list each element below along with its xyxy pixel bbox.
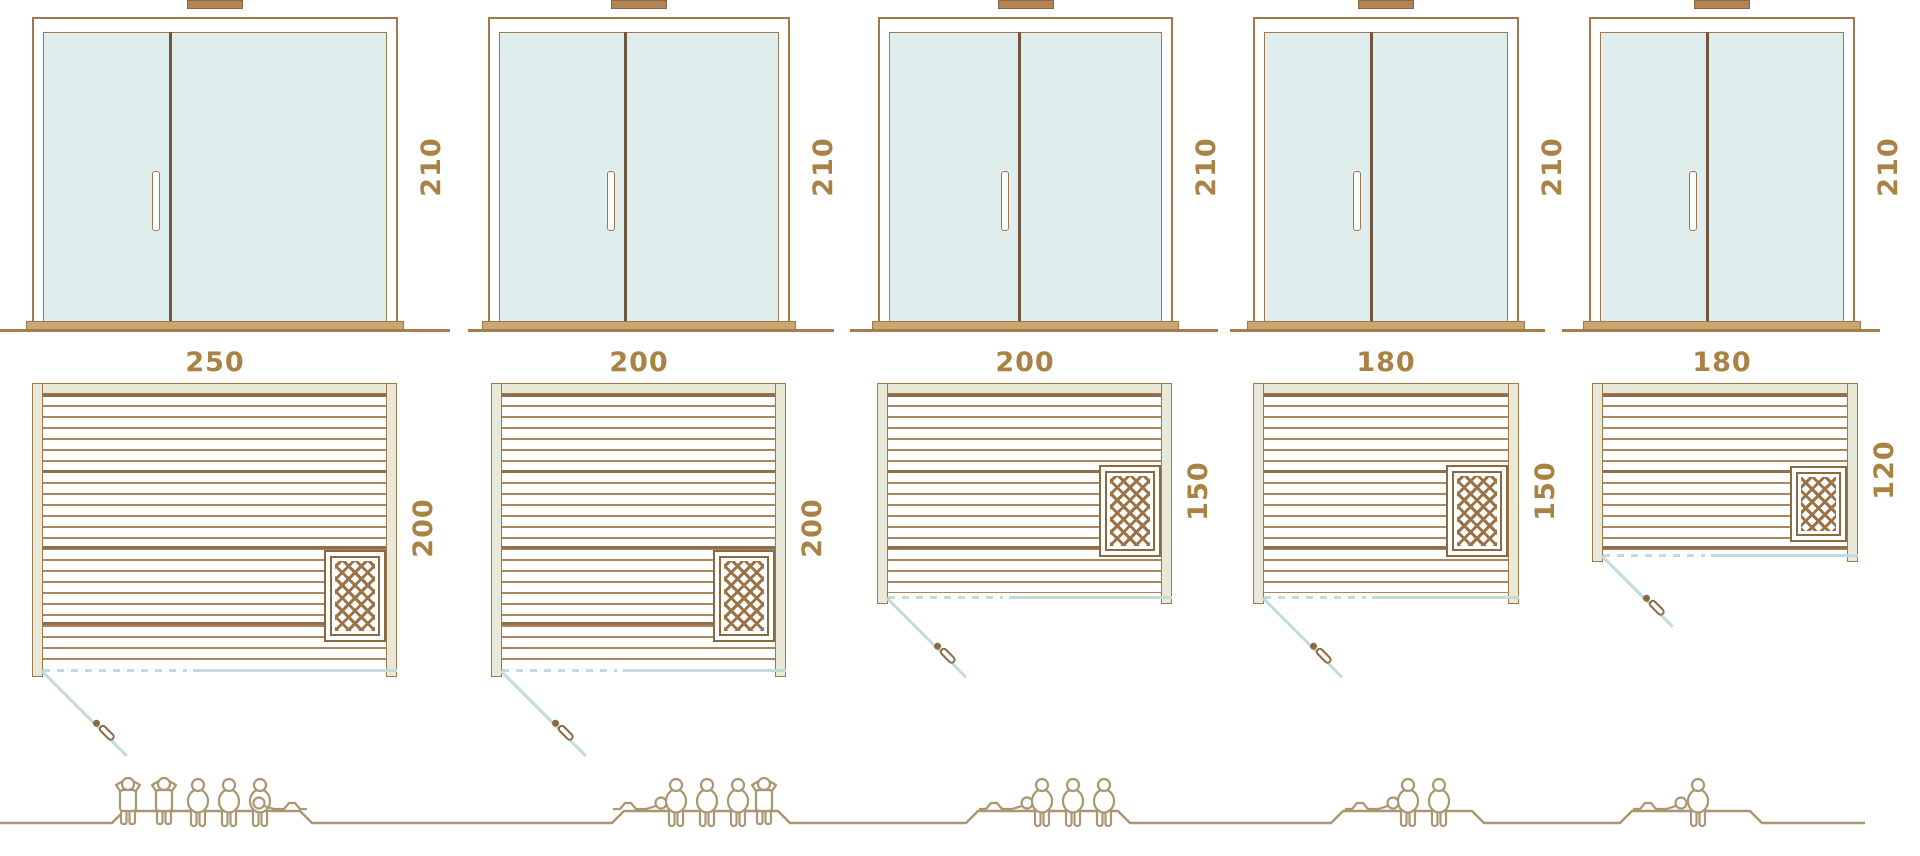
heater-grate-icon — [1801, 477, 1836, 531]
door-sill — [482, 321, 796, 330]
door-opening-dashed-line — [43, 669, 187, 672]
plan-left-wall — [1253, 383, 1264, 604]
person-lying-icon — [1346, 798, 1399, 810]
person-sitting-icon — [219, 779, 239, 826]
person-sitting-icon — [188, 779, 208, 826]
door-opening-dashed-line — [1603, 554, 1705, 557]
roof-vent-cap — [998, 0, 1054, 9]
plan-top-wall — [1253, 383, 1519, 394]
door-handle-icon — [1353, 171, 1361, 231]
plan-top-wall — [32, 383, 397, 394]
plan-depth-label: 120 — [1872, 430, 1898, 510]
plan-door-handle-bar — [1314, 646, 1333, 665]
person-lying-icon — [254, 798, 307, 810]
person-sitting-icon — [728, 779, 748, 826]
plan-left-wall — [491, 383, 502, 677]
person-standing-icon — [152, 778, 176, 824]
glass-front-line — [193, 669, 397, 672]
plan-door-handle-icon — [1308, 640, 1336, 668]
door-sill — [26, 321, 404, 330]
plan-door-handle-icon — [550, 717, 578, 745]
plan-depth-label: 200 — [800, 488, 826, 568]
glass-front-line — [1711, 554, 1858, 557]
door-height-label: 210 — [811, 127, 837, 207]
roof-vent-cap — [187, 0, 243, 9]
door-swing-line — [500, 670, 587, 757]
plan-door-handle-bar — [556, 723, 575, 742]
door-divider — [1706, 32, 1709, 322]
door-opening-dashed-line — [502, 669, 617, 672]
plan-width-label: 250 — [155, 350, 275, 376]
glass-front-line — [1009, 596, 1172, 599]
person-standing-icon — [752, 778, 776, 824]
door-swing-line — [41, 670, 128, 757]
plan-door-handle-icon — [1641, 592, 1669, 620]
door-opening-dashed-line — [1264, 596, 1366, 599]
door-sill — [872, 321, 1179, 330]
plan-top-wall — [1592, 383, 1858, 394]
person-lying-icon — [614, 798, 667, 810]
door-handle-icon — [152, 171, 160, 231]
roof-vent-cap — [1694, 0, 1750, 9]
person-sitting-icon — [1063, 779, 1083, 826]
door-divider — [1370, 32, 1373, 322]
person-sitting-icon — [666, 779, 686, 826]
glass-front-line — [1372, 596, 1519, 599]
plan-door-handle-bar — [938, 646, 957, 665]
plan-left-wall — [1592, 383, 1603, 562]
glass-panel-right — [1019, 32, 1162, 322]
plan-door-handle-bar — [1647, 598, 1666, 617]
glass-panel-right — [1371, 32, 1508, 322]
plan-door-handle-bar — [97, 723, 116, 742]
glass-panel-left — [889, 32, 1019, 322]
glass-panel-right — [1707, 32, 1844, 322]
person-lying-icon — [980, 798, 1033, 810]
plan-right-wall — [1508, 383, 1519, 604]
person-lying-icon — [1634, 798, 1687, 810]
plan-right-wall — [775, 383, 786, 677]
heater-grate-icon — [1110, 476, 1150, 546]
plan-depth-label: 200 — [411, 488, 437, 568]
door-height-label: 210 — [1540, 127, 1566, 207]
door-opening-dashed-line — [888, 596, 1003, 599]
person-sitting-icon — [1032, 779, 1052, 826]
plan-right-wall — [386, 383, 397, 677]
plan-door-handle-icon — [91, 717, 119, 745]
glass-panel-right — [170, 32, 387, 322]
door-divider — [169, 32, 172, 322]
plan-depth-label: 150 — [1533, 451, 1559, 531]
person-sitting-icon — [1429, 779, 1449, 826]
plan-door-handle-icon — [932, 640, 960, 668]
plan-depth-label: 150 — [1186, 451, 1212, 531]
door-handle-icon — [607, 171, 615, 231]
glass-front-line — [623, 669, 786, 672]
plan-top-wall — [491, 383, 786, 394]
plan-top-wall — [877, 383, 1172, 394]
plan-width-label: 180 — [1662, 350, 1782, 376]
plan-width-label: 200 — [965, 350, 1085, 376]
sauna-diagram: 2102502002102002002102001502101801502101… — [0, 0, 1920, 856]
plan-width-label: 200 — [579, 350, 699, 376]
door-handle-icon — [1689, 171, 1697, 231]
capacity-ground-line — [0, 811, 1865, 823]
door-sill — [1583, 321, 1861, 330]
door-sill — [1247, 321, 1525, 330]
roof-vent-cap — [1358, 0, 1414, 9]
person-sitting-icon — [697, 779, 717, 826]
roof-vent-cap — [611, 0, 667, 9]
people-capacity-row — [0, 770, 1920, 856]
door-height-label: 210 — [1876, 127, 1902, 207]
door-height-label: 210 — [1194, 127, 1220, 207]
person-sitting-icon — [1688, 779, 1708, 826]
plan-right-wall — [1161, 383, 1172, 604]
door-divider — [624, 32, 627, 322]
door-divider — [1018, 32, 1021, 322]
plan-right-wall — [1847, 383, 1858, 562]
heater-grate-icon — [1457, 476, 1497, 546]
person-sitting-icon — [1398, 779, 1418, 826]
glass-panel-right — [625, 32, 779, 322]
heater-grate-icon — [335, 561, 375, 631]
door-height-label: 210 — [419, 127, 445, 207]
person-sitting-icon — [1094, 779, 1114, 826]
glass-panel-left — [43, 32, 170, 322]
door-handle-icon — [1001, 171, 1009, 231]
plan-left-wall — [877, 383, 888, 604]
heater-grate-icon — [724, 561, 764, 631]
plan-width-label: 180 — [1326, 350, 1446, 376]
plan-left-wall — [32, 383, 43, 677]
